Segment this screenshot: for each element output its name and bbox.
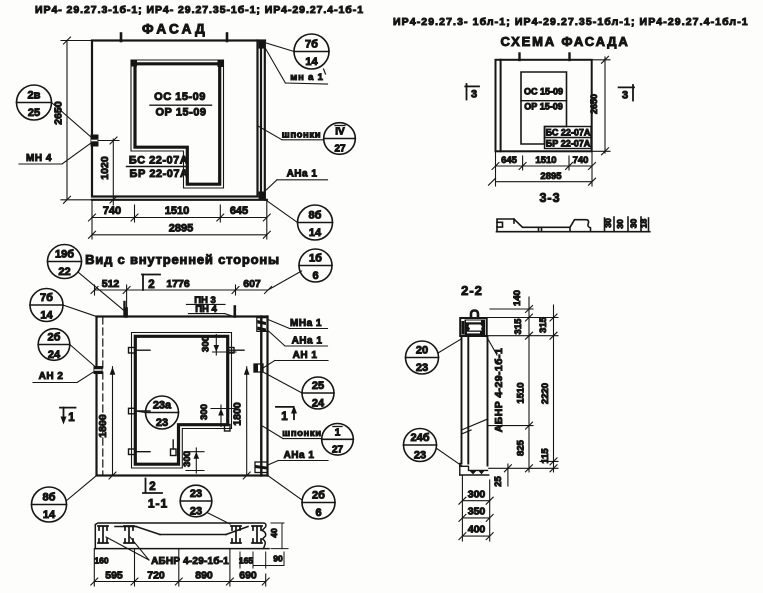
svg-text:БС 22-07А: БС 22-07А	[546, 127, 591, 137]
svg-text:АНа 1: АНа 1	[287, 169, 318, 180]
svg-text:шпонки: шпонки	[282, 130, 321, 141]
svg-text:1776: 1776	[166, 278, 190, 290]
svg-text:2650: 2650	[589, 94, 599, 114]
svg-text:30: 30	[603, 218, 613, 228]
svg-text:АНа 1: АНа 1	[292, 336, 323, 347]
svg-text:2б: 2б	[312, 490, 325, 502]
svg-text:300: 300	[201, 336, 212, 352]
svg-text:6: 6	[312, 270, 318, 282]
svg-text:315: 315	[538, 316, 549, 333]
svg-text:2-2: 2-2	[461, 283, 483, 298]
svg-text:МНа 1: МНа 1	[290, 318, 322, 329]
svg-text:607: 607	[243, 278, 261, 290]
svg-text:IV: IV	[335, 127, 345, 138]
svg-text:300: 300	[468, 489, 486, 501]
svg-text:690: 690	[239, 570, 257, 582]
svg-text:1-1: 1-1	[148, 497, 168, 511]
svg-text:АН 2: АН 2	[39, 371, 64, 382]
svg-text:645: 645	[230, 205, 248, 217]
svg-text:6: 6	[315, 507, 321, 519]
svg-text:18: 18	[639, 219, 649, 229]
svg-text:1: 1	[68, 412, 75, 424]
svg-text:160: 160	[94, 556, 108, 566]
svg-text:720: 720	[147, 570, 165, 582]
svg-text:АНа 1: АНа 1	[284, 450, 315, 461]
svg-text:890: 890	[195, 570, 213, 582]
svg-text:300: 300	[199, 404, 210, 420]
svg-text:25: 25	[312, 380, 324, 392]
svg-text:ИР4-29.27.3- 1бл-1; ИР4-29.27.: ИР4-29.27.3- 1бл-1; ИР4-29.27.35-1бл-1; …	[393, 16, 749, 28]
svg-text:825: 825	[516, 439, 527, 456]
svg-text:1б: 1б	[309, 253, 322, 265]
svg-text:ОС 15-09: ОС 15-09	[154, 91, 206, 103]
svg-text:140: 140	[512, 290, 523, 306]
svg-text:СХЕМА ФАСАДА: СХЕМА ФАСАДА	[500, 34, 629, 49]
svg-text:МН 4: МН 4	[26, 153, 52, 164]
svg-text:3-3: 3-3	[539, 191, 560, 205]
svg-text:1800: 1800	[232, 402, 244, 426]
svg-text:1020: 1020	[99, 156, 111, 180]
svg-text:АБНР 4-29-1б-1: АБНР 4-29-1б-1	[151, 555, 229, 567]
svg-text:БР 22-07А: БР 22-07А	[130, 168, 189, 180]
svg-text:7б: 7б	[305, 39, 318, 51]
svg-text:Вид с внутренней стороны: Вид с внутренней стороны	[85, 252, 280, 267]
svg-text:2220: 2220	[540, 383, 551, 404]
svg-text:115: 115	[540, 448, 551, 464]
svg-text:300: 300	[182, 451, 193, 467]
svg-text:23: 23	[416, 362, 428, 374]
svg-text:2895: 2895	[169, 223, 193, 235]
svg-text:23: 23	[190, 488, 202, 500]
svg-text:315: 315	[513, 318, 524, 335]
svg-text:350: 350	[468, 506, 486, 518]
svg-text:27: 27	[334, 144, 346, 155]
svg-text:30: 30	[629, 219, 639, 229]
svg-text:23: 23	[156, 417, 168, 429]
svg-text:14: 14	[305, 56, 318, 68]
svg-text:25: 25	[28, 107, 40, 119]
svg-text:АН 1: АН 1	[293, 350, 318, 361]
svg-text:24: 24	[312, 398, 325, 410]
svg-text:3: 3	[471, 89, 477, 101]
svg-text:645: 645	[501, 155, 518, 166]
svg-text:2: 2	[149, 481, 155, 493]
svg-text:шпонки: шпонки	[282, 428, 321, 439]
svg-text:мн а 1: мн а 1	[290, 72, 323, 83]
svg-text:400: 400	[468, 524, 486, 536]
svg-text:740: 740	[573, 155, 589, 166]
svg-text:3: 3	[622, 90, 628, 102]
svg-text:14: 14	[309, 227, 322, 239]
svg-text:24б: 24б	[410, 432, 429, 444]
svg-text:27: 27	[332, 445, 344, 456]
svg-text:512: 512	[102, 278, 120, 290]
svg-text:20: 20	[416, 345, 428, 357]
svg-text:595: 595	[105, 570, 123, 582]
svg-text:19б: 19б	[55, 249, 74, 261]
svg-text:БР 22-07А: БР 22-07А	[546, 139, 591, 149]
svg-text:АБНР 4-29-1б-1: АБНР 4-29-1б-1	[493, 348, 505, 432]
svg-text:ОС 15-09: ОС 15-09	[524, 87, 563, 97]
svg-text:1510: 1510	[165, 205, 189, 217]
svg-text:1510: 1510	[516, 382, 527, 403]
svg-text:90: 90	[273, 554, 283, 564]
svg-text:8б: 8б	[309, 210, 322, 222]
svg-text:40: 40	[269, 528, 279, 538]
svg-text:1800: 1800	[97, 414, 109, 438]
svg-text:1: 1	[281, 411, 288, 423]
svg-text:ОР 15-09: ОР 15-09	[524, 102, 563, 112]
svg-text:БС 22-07А: БС 22-07А	[129, 155, 188, 167]
svg-text:ОР 15-09: ОР 15-09	[155, 107, 206, 119]
svg-text:7б: 7б	[40, 292, 53, 304]
svg-text:1510: 1510	[535, 155, 556, 166]
svg-text:25: 25	[493, 476, 504, 487]
svg-text:14: 14	[40, 310, 53, 322]
svg-text:1: 1	[335, 428, 341, 439]
svg-text:23: 23	[190, 506, 202, 518]
svg-text:30: 30	[615, 219, 625, 229]
svg-text:23: 23	[414, 450, 426, 462]
svg-text:24: 24	[48, 349, 61, 361]
svg-text:22: 22	[58, 266, 70, 278]
svg-text:2б: 2б	[48, 332, 61, 344]
svg-text:165: 165	[239, 556, 253, 566]
svg-text:2в: 2в	[28, 90, 41, 102]
svg-text:8б: 8б	[43, 492, 56, 504]
svg-text:2: 2	[148, 279, 154, 291]
svg-text:23а: 23а	[153, 400, 172, 412]
svg-text:ФАСАД: ФАСАД	[142, 22, 208, 37]
svg-text:14: 14	[43, 509, 56, 521]
svg-text:2895: 2895	[540, 171, 562, 182]
svg-text:740: 740	[103, 205, 121, 217]
svg-text:ИР4- 29.27.3-1б-1; ИР4- 29.27.: ИР4- 29.27.3-1б-1; ИР4- 29.27.35-1б-1; И…	[35, 4, 364, 16]
